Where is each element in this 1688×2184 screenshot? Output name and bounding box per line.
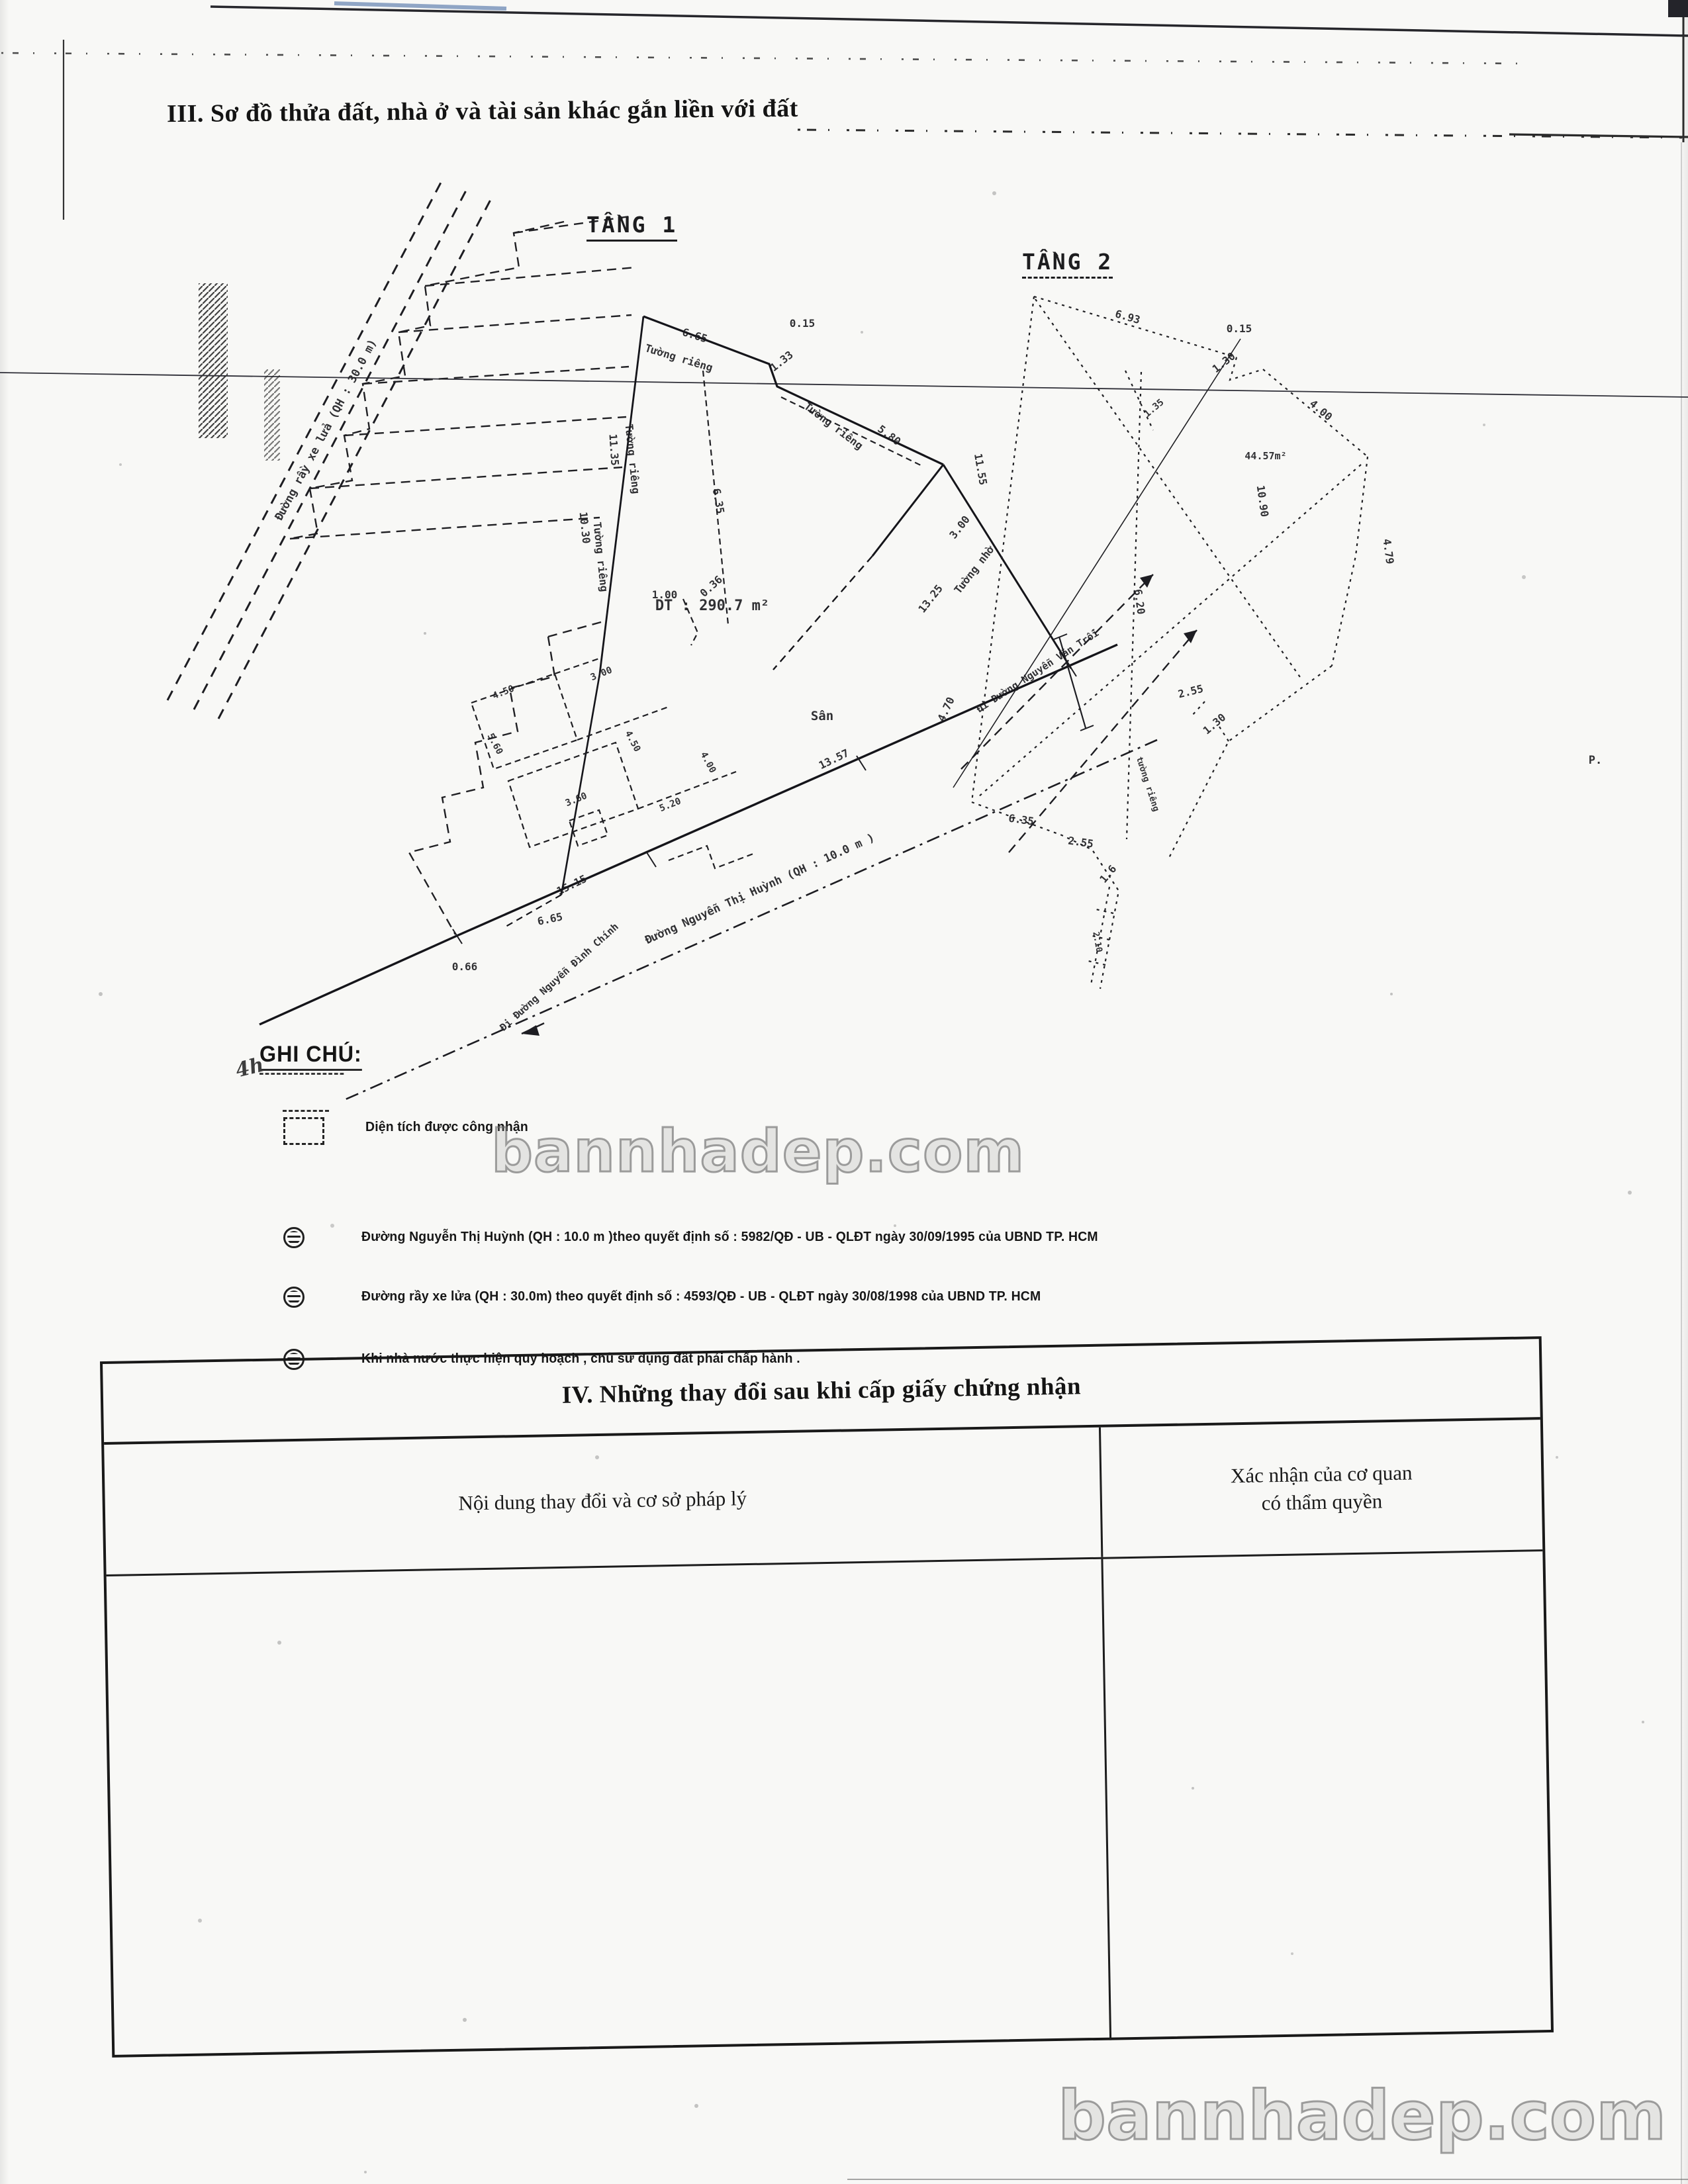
- dimension-label: 4.79: [1380, 538, 1396, 565]
- legend-item: Đường rầy xe lửa (QH : 30.0m) theo quyết…: [283, 1287, 1062, 1308]
- hatched-circle-symbol: [283, 1227, 305, 1248]
- dimension-label: 4.00: [1307, 397, 1335, 423]
- road-direction-label: Đi Đường Nguyễn Văn Trỗi: [974, 627, 1101, 715]
- railway-lines: [167, 180, 491, 719]
- column-header-label: Nội dung thay đổi và cơ sở pháp lý: [458, 1484, 747, 1517]
- dimension-label: 1.33: [768, 348, 796, 374]
- dimension-label: Tường riêng: [590, 522, 610, 592]
- hatched-circle-symbol: [283, 1287, 305, 1308]
- legend-item: Đường Nguyễn Thị Huỳnh (QH : 10.0 m )the…: [283, 1227, 1121, 1248]
- column-header-label: có thẩm quyền: [1261, 1487, 1382, 1517]
- dimension-label: 4.70: [935, 695, 957, 723]
- dimension-label: 10.30: [577, 511, 593, 544]
- dimension-label: 6.35: [1008, 811, 1035, 827]
- legend-item-label: Đường rầy xe lửa (QH : 30.0m) theo quyết…: [361, 1287, 1041, 1304]
- column-header-label: Xác nhận của cơ quan: [1231, 1459, 1413, 1490]
- road-label: Đường Nguyễn Thị Huỳnh (QH : 10.0 m ): [643, 831, 876, 947]
- table-cell-empty: [1103, 1551, 1551, 2040]
- dimension-label: 6.93: [1113, 307, 1141, 326]
- dimension-label: 15.15: [555, 872, 589, 897]
- dimension-label: 2.55: [1067, 834, 1094, 850]
- table-title: IV. Những thay đổi sau khi cấp giấy chứn…: [561, 1372, 1081, 1410]
- dimension-label: 5.20: [658, 796, 682, 814]
- legend-item-label: Diện tích được công nhận: [365, 1117, 528, 1135]
- dimension-label: 4.50: [623, 729, 643, 753]
- column-header-confirmation: Xác nhận của cơ quan có thẩm quyền: [1101, 1420, 1542, 1557]
- dimension-label: tường riêng: [1134, 756, 1161, 813]
- legend-item-label: Đường Nguyễn Thị Huỳnh (QH : 10.0 m )the…: [361, 1227, 1098, 1245]
- dimension-label: 6.35: [710, 487, 727, 514]
- floor1-label: TẦNG 1: [586, 212, 677, 242]
- floor2-label: TẦNG 2: [1022, 249, 1113, 279]
- dimension-label: 11.35: [606, 433, 621, 466]
- area-label: DT : 290.7 m²: [655, 598, 769, 614]
- scanned-certificate-page: { "page": { "section3_title": "III. Sơ đ…: [0, 0, 1688, 2184]
- legend-item: Diện tích được công nhận: [283, 1117, 534, 1145]
- legend-title: GHI CHÚ:: [259, 1042, 362, 1071]
- dimension-label: 3.00: [589, 665, 614, 683]
- changes-table-body: [107, 1551, 1551, 2058]
- dimension-label: 13.57: [817, 747, 851, 772]
- railway-label: Đường rầy xe lửa (QH : 30.0 m): [272, 337, 380, 523]
- dimension-label: 11.55: [972, 453, 990, 486]
- dimension-label: 2.55: [1177, 682, 1205, 701]
- dimension-label: 10.90: [1254, 484, 1272, 518]
- dashed-rect-symbol: [283, 1117, 324, 1145]
- dimension-label: 6.20: [1131, 588, 1147, 615]
- railway-hatch-strip: [264, 369, 280, 461]
- scan-fold-line: [0, 373, 1688, 397]
- stray-mark: P.: [1589, 754, 1602, 767]
- table-cell-empty: [107, 1559, 1111, 2058]
- floor2-area-label: 44.57m²: [1244, 450, 1286, 462]
- dimension-label: 2.10: [1090, 931, 1103, 954]
- dimension-label: 0.15: [1227, 322, 1252, 335]
- dimension-label: Tường nhờ: [951, 543, 997, 596]
- dimension-label: 6.65: [536, 910, 564, 928]
- dimension-label: 13.25: [915, 582, 945, 615]
- column-header-content: Nội dung thay đổi và cơ sở pháp lý: [104, 1428, 1103, 1574]
- dimension-label: 0.36: [698, 573, 725, 600]
- section3-title: III. Sơ đồ thửa đất, nhà ở và tài sản kh…: [167, 94, 798, 128]
- dimension-label: 6.65: [680, 326, 708, 345]
- dimension-label: 1.35: [1142, 397, 1166, 420]
- road-direction-label: Đi Đường Nguyễn Đình Chính: [497, 921, 621, 1033]
- dimension-label: 4.00: [698, 750, 718, 774]
- neighbour-parcel-lines: [290, 216, 635, 934]
- dimension-label: 1.6: [1097, 862, 1119, 885]
- dimension-label: 3.00: [947, 514, 972, 541]
- changes-table: IV. Những thay đổi sau khi cấp giấy chứn…: [100, 1336, 1554, 2058]
- dimension-label: 0.15: [790, 317, 816, 330]
- railway-hatch-strip: [199, 283, 228, 438]
- dimension-label: 0.66: [452, 960, 478, 973]
- yard-label: Sân: [811, 709, 833, 723]
- changes-table-column-headers: Nội dung thay đổi và cơ sở pháp lý Xác n…: [104, 1420, 1542, 1576]
- dimension-label: Tường riêng: [643, 341, 714, 374]
- dimension-label: Tường riêng: [802, 400, 865, 452]
